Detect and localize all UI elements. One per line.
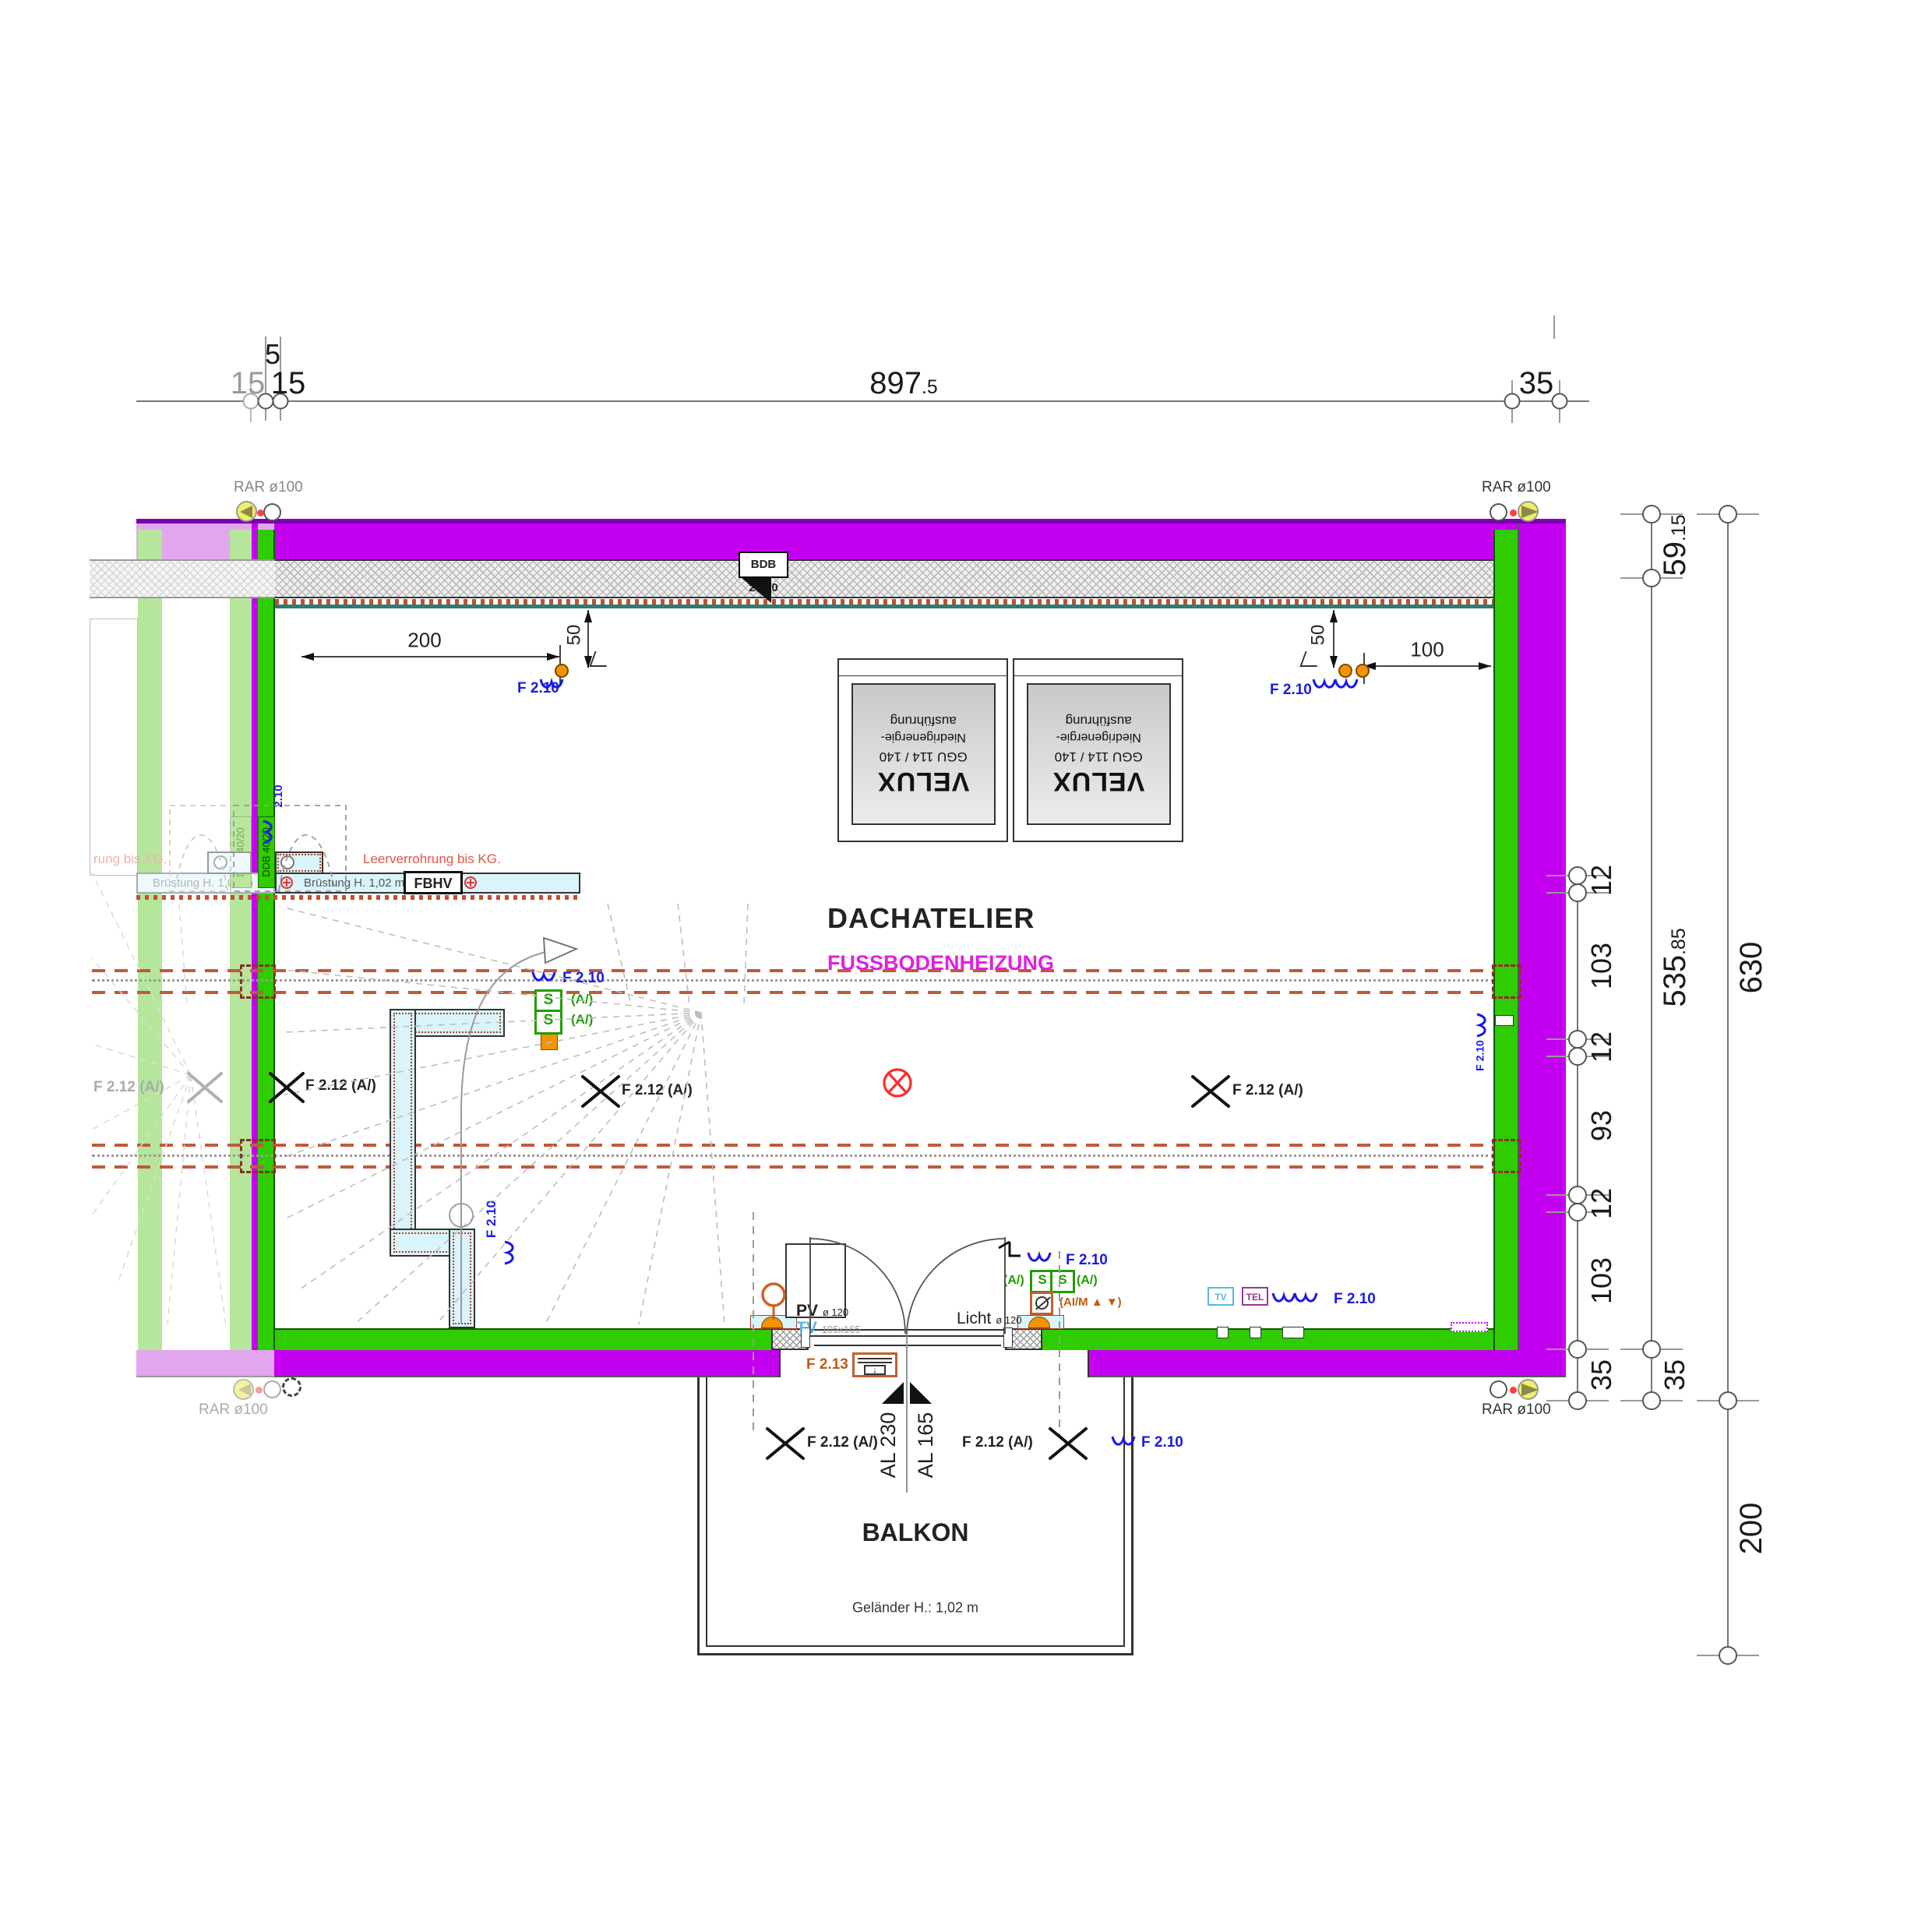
- chain-tick: [1568, 1391, 1587, 1410]
- balcony-door-al230: AL 230: [877, 1412, 899, 1479]
- balcony-door-al165: AL 165: [915, 1412, 936, 1479]
- wall-socket-lamp: [1282, 1327, 1304, 1338]
- velux-pane: VELUX GGU 114 / 140 Niedrigenergie- ausf…: [1027, 683, 1171, 825]
- ceiling-light-x-adjacent: [189, 1074, 221, 1102]
- door-av-left: (A/): [1003, 1274, 1024, 1288]
- dim100-arrow-right: [1479, 662, 1491, 670]
- f210-label-topright: F 2.10: [1270, 682, 1312, 698]
- f212-label-balcony-left: F 2.12 (A/): [807, 1435, 878, 1451]
- f213-hatch-line: [858, 1362, 892, 1363]
- velux-frame-strip: [1014, 660, 1182, 676]
- wall-socket-tv: [1217, 1327, 1229, 1338]
- stair-eye-circle: [450, 1204, 473, 1227]
- dim-main: 59: [1658, 541, 1692, 576]
- f213-hatch-line: [858, 1358, 892, 1359]
- ceiling-outlet-dot-right-1: [1338, 664, 1352, 678]
- wall-lamp-icon-door: [1028, 1253, 1050, 1260]
- f210-rot-label-right-wall: F 2.10: [1475, 1040, 1486, 1071]
- room-label-heating: FUSSBODENHEIZUNG: [827, 952, 1054, 974]
- velux-pane: VELUX GGU 114 / 140 Niedrigenergie- ausf…: [851, 683, 996, 825]
- wall-socket-tel: [1250, 1327, 1261, 1338]
- tv-size: 105x165: [822, 1324, 861, 1335]
- bottom-inner-wall-green-left: [275, 1328, 771, 1350]
- floor-plan-canvas: Brüstung H. 1,02 m Brüstung H. 1,02 m FB…: [0, 0, 1932, 1932]
- wall-lamp-icon-topright-2: [1335, 679, 1357, 687]
- chain-tick: [1568, 1340, 1587, 1359]
- dim50L-label: 50: [564, 625, 583, 646]
- pipe-wall-connector-left-2: [240, 1139, 276, 1173]
- right-dim-630: 630: [1735, 942, 1768, 994]
- empty-conduit-note: Leerverrohrung bis KG.: [363, 852, 501, 866]
- alarm-box: [1030, 1292, 1053, 1315]
- chain-tick: [1719, 1646, 1737, 1665]
- right-mid-chain-line: [1651, 505, 1652, 1410]
- rar-yellow-circle-topright: [1518, 501, 1539, 522]
- f210-label-stair: F 2.10: [562, 971, 605, 986]
- rar-dot-bottomleft: [256, 1387, 263, 1394]
- velux-frame-strip: [839, 660, 1007, 676]
- velux-brand: VELUX: [877, 766, 969, 796]
- wall-lamp-icon-rightmid: [1477, 1014, 1485, 1036]
- heating-pipe-4: [92, 1165, 1494, 1169]
- smoke-detector-symbol: [884, 1070, 911, 1096]
- right-dim-35a: 35: [1587, 1359, 1616, 1391]
- f210-label-right-wall: F 2.10: [1334, 1292, 1376, 1307]
- dim200-line: [301, 656, 559, 658]
- f212-label-adjacent: F 2.12 (A/): [93, 1080, 164, 1095]
- adjacent-room-outline: [90, 619, 138, 876]
- f212-label-right: F 2.12 (A/): [1232, 1083, 1303, 1098]
- rar-dot-topright: [1510, 509, 1517, 516]
- dim100-line: [1363, 665, 1491, 667]
- dim200-arrow-right: [547, 653, 559, 661]
- pv-text: PV: [796, 1302, 818, 1320]
- chain-tick: [1568, 1030, 1587, 1049]
- velux-skylight-1: VELUX GGU 114 / 140 Niedrigenergie- ausf…: [837, 658, 1008, 842]
- alarm-mode-label: (AI/M ▲ ▼): [1059, 1296, 1122, 1309]
- dim-main: 535: [1658, 955, 1692, 1007]
- dim-corner-glyph-right: [1299, 651, 1322, 667]
- chain-tick: [1719, 505, 1737, 524]
- top-dim-897: 897.5: [869, 367, 937, 400]
- top-dim-tick: [1504, 393, 1521, 410]
- fbhv-label: FBHV: [414, 876, 453, 891]
- pipe-wall-connector-right-2: [1492, 1139, 1521, 1173]
- tel-outlet-box: TEL: [1242, 1287, 1268, 1306]
- chain-tick: [1568, 866, 1587, 885]
- parapet-red-dot-strip: [136, 895, 580, 900]
- heating-pipe-1: [92, 969, 1494, 972]
- rar-white-circle-bottomleft: [263, 1380, 281, 1398]
- door-sill-line-3: [814, 1345, 1001, 1346]
- door-stop-glyph: [999, 1242, 1021, 1256]
- velux-energy-1: Niedrigenergie-: [877, 730, 969, 744]
- rar-white-circle-topright: [1490, 503, 1507, 521]
- wall-socket-right-mid: [1495, 1015, 1514, 1026]
- wall-lamp-icon-topright-1: [1313, 679, 1335, 687]
- tel-outlet-label: TEL: [1246, 1292, 1264, 1303]
- rar-yellow-circle-bottomright: [1518, 1379, 1539, 1400]
- door-jamb-right: [1003, 1327, 1013, 1348]
- room-label-balkon: BALKON: [862, 1520, 969, 1546]
- railing-height-label: Geländer H.: 1,02 m: [852, 1601, 978, 1616]
- right-dim-59: 59.15: [1659, 515, 1691, 576]
- f210-rot-label-left-wall: 2.10: [273, 784, 285, 807]
- dim-corner-glyph-left: [589, 651, 612, 667]
- f213-floor-socket: ↓: [852, 1352, 897, 1377]
- switch-letter: S: [544, 992, 554, 1008]
- top-dim-35: 35: [1519, 367, 1554, 400]
- f213-label: F 2.13: [806, 1357, 848, 1373]
- dim50R-arrow-bot: [1330, 656, 1338, 668]
- party-wall-green: [258, 530, 275, 1350]
- wall-lamp-icon-stair-bottom: [505, 1242, 513, 1264]
- dim100-label: 100: [1410, 639, 1444, 660]
- right-dim-35b: 35: [1660, 1359, 1690, 1391]
- licht-text: Licht: [957, 1310, 991, 1327]
- dim200-label: 200: [407, 629, 441, 650]
- top-ref-mark: [1553, 316, 1555, 339]
- bottom-inner-wall-green-right: [1042, 1328, 1493, 1350]
- switch-letter: S: [1038, 1272, 1046, 1287]
- pipe-guide-dotted-1: [92, 979, 1494, 982]
- pv-diameter: ø 120: [823, 1306, 848, 1318]
- adjacent-bottom-wall-lavender: [136, 1350, 274, 1377]
- party-wall-magenta-core: [252, 524, 258, 1377]
- stair-walking-arrow: [544, 938, 576, 963]
- room-label-dachatelier: DACHATELIER: [827, 904, 1035, 933]
- chain-tick: [1568, 1186, 1587, 1204]
- f213-socket-icon: ↓: [864, 1365, 886, 1375]
- chain-tick: [1642, 1340, 1661, 1359]
- right-dim-200: 200: [1735, 1503, 1768, 1555]
- velux-skylight-2: VELUX GGU 114 / 140 Niedrigenergie- ausf…: [1013, 658, 1183, 842]
- chain-tick: [1642, 1391, 1661, 1410]
- rar-label-bottomleft: RAR ø100: [199, 1402, 268, 1418]
- bottom-wall-magenta-right: [1089, 1350, 1566, 1377]
- tv-outlet-label: TV: [1215, 1292, 1226, 1303]
- f212-label-wall: F 2.12 (A/): [305, 1078, 376, 1094]
- top-dim-tick: [1552, 393, 1568, 410]
- f210-label-stair-bottom: F 2.10: [485, 1200, 499, 1238]
- rar-label-topleft: RAR ø100: [234, 480, 303, 495]
- velux-text-block: VELUX GGU 114 / 140 Niedrigenergie- ausf…: [877, 713, 969, 796]
- right-inner-chain-line: [1577, 866, 1578, 1404]
- right-dim-103a: 103: [1587, 943, 1616, 989]
- wall-lamp-icon-rightwall-2: [1295, 1293, 1317, 1301]
- bdb-box: BDB 20/20: [739, 552, 788, 578]
- rar-dot-topleft: [257, 509, 264, 516]
- heating-pipe-3: [92, 1144, 1494, 1147]
- f210-label-topleft: F 2.10: [517, 681, 559, 696]
- dim50R-label: 50: [1308, 625, 1327, 646]
- licht-diameter: ø 120: [996, 1314, 1021, 1326]
- top-wall-red-dot-strip: [275, 599, 1493, 605]
- velux-energy-2: ausführung: [1052, 713, 1144, 728]
- chain-tick: [1719, 1391, 1737, 1410]
- stair-parapet-down-bar: [449, 1229, 475, 1328]
- switch-letter: S: [544, 1012, 554, 1028]
- chain-tick: [1568, 1047, 1587, 1066]
- adjacent-top-insulation-hatch: [90, 559, 275, 598]
- pipe-wall-connector-right-1: [1492, 964, 1521, 999]
- velux-energy-1: Niedrigenergie-: [1052, 730, 1144, 744]
- right-dim-103b: 103: [1587, 1257, 1616, 1304]
- velux-model: GGU 114 / 140: [1052, 749, 1144, 764]
- chain-tick: [1568, 1203, 1587, 1222]
- tv-duct-label: TV 105x165: [796, 1320, 861, 1337]
- ceiling-ring-symbol: [763, 1284, 784, 1306]
- velux-model: GGU 114 / 140: [877, 749, 969, 764]
- pipe-wall-connector-left-1: [240, 964, 276, 999]
- right-dim-535: 535.85: [1659, 928, 1691, 1007]
- stair-winder-fan: [284, 904, 748, 1324]
- dim50L-arrow-top: [584, 610, 592, 622]
- magenta-dotted-socket-strip: [1451, 1322, 1488, 1332]
- switch-box-s2: S: [534, 1010, 562, 1035]
- ceiling-outlet-dot-left: [555, 664, 569, 678]
- rar-label-topright: RAR ø100: [1482, 480, 1551, 495]
- chain-tick: [1568, 883, 1587, 902]
- wall-lamp-icon-rightwall-1: [1273, 1293, 1295, 1301]
- rar-white-circle-topleft: [263, 503, 281, 521]
- velux-brand: VELUX: [1052, 766, 1144, 796]
- right-dim-12a: 12: [1587, 865, 1616, 896]
- right-outer-chain-line: [1727, 505, 1729, 1661]
- heating-pipe-2: [92, 991, 1494, 994]
- stair-parapet-left-bar: [390, 1009, 416, 1257]
- top-wall-teal-face: [275, 605, 1493, 608]
- top-dim-line: [136, 400, 1589, 402]
- rar-label-bottomright: RAR ø100: [1482, 1402, 1551, 1418]
- dim-decimal: .5: [922, 377, 938, 398]
- dim-decimal: .85: [1669, 928, 1690, 954]
- adjacent-inner-wall-green: [138, 530, 162, 1350]
- rar-dot-bottomright: [1510, 1387, 1517, 1394]
- rar-yellow-circle-topleft: [236, 501, 257, 522]
- dim-decimal: .15: [1669, 515, 1690, 541]
- right-dim-93: 93: [1587, 1110, 1616, 1141]
- velux-text-block: VELUX GGU 114 / 140 Niedrigenergie- ausf…: [1052, 713, 1144, 796]
- velux-energy-2: ausführung: [877, 713, 969, 728]
- right-inner-wall-green: [1493, 530, 1518, 1350]
- bdb-symbol: [742, 578, 771, 603]
- switch-av-label-1: (A/): [571, 992, 593, 1007]
- top-wall-magenta: [274, 524, 1566, 559]
- dim50R-arrow-top: [1330, 610, 1338, 622]
- f210-label-door: F 2.10: [1066, 1253, 1108, 1268]
- empty-conduit-note-adjacent: rung bis KG.: [93, 852, 167, 866]
- stair-niche-circle-adjacent: [213, 855, 227, 869]
- right-dim-12c: 12: [1587, 1188, 1616, 1219]
- vent-dashed-circle-bottomleft: [282, 1377, 301, 1397]
- tv-text: TV: [796, 1319, 817, 1337]
- switch-av-label-2: (A/): [571, 1013, 593, 1027]
- ceiling-outlet-dot-right-2: [1356, 664, 1370, 678]
- f212-label-mid: F 2.12 (A/): [622, 1083, 693, 1098]
- pv-label: PV ø 120: [796, 1303, 848, 1320]
- top-dim-5: 5: [265, 340, 280, 369]
- f212-label-balcony-right: F 2.12 (A/): [962, 1435, 1033, 1451]
- dim-main: 897: [869, 366, 922, 400]
- top-insulation-hatch: [275, 559, 1493, 598]
- dim200-arrow-left: [301, 653, 314, 661]
- right-wall-magenta: [1518, 524, 1566, 1377]
- top-dim-15: 15: [271, 367, 306, 400]
- licht-label: Licht ø 120: [957, 1310, 1021, 1327]
- switch-letter: S: [1058, 1272, 1066, 1287]
- bottom-wall-magenta-left: [274, 1350, 779, 1377]
- tv-outlet-box: TV: [1207, 1287, 1234, 1306]
- fbhv-box: FBHV: [404, 871, 463, 894]
- rar-yellow-circle-bottomleft: [233, 1379, 254, 1400]
- f210-label-balcony-right: F 2.10: [1141, 1435, 1183, 1451]
- right-dim-12b: 12: [1587, 1031, 1616, 1063]
- parapet-height-label: Brüstung H. 1,02 m: [304, 877, 404, 890]
- rar-white-circle-bottomright: [1490, 1380, 1507, 1398]
- door-av-right: (A/): [1077, 1274, 1098, 1288]
- stair-niche-circle: [280, 855, 294, 869]
- top-dim-15-adjacent: 15: [231, 367, 266, 400]
- ddb-label-active: DDB 40/20: [261, 827, 272, 877]
- adjacent-party-wall-green: [230, 530, 252, 1350]
- door-switch-s2: S: [1050, 1270, 1075, 1293]
- pipe-guide-dotted-2: [92, 1155, 1494, 1157]
